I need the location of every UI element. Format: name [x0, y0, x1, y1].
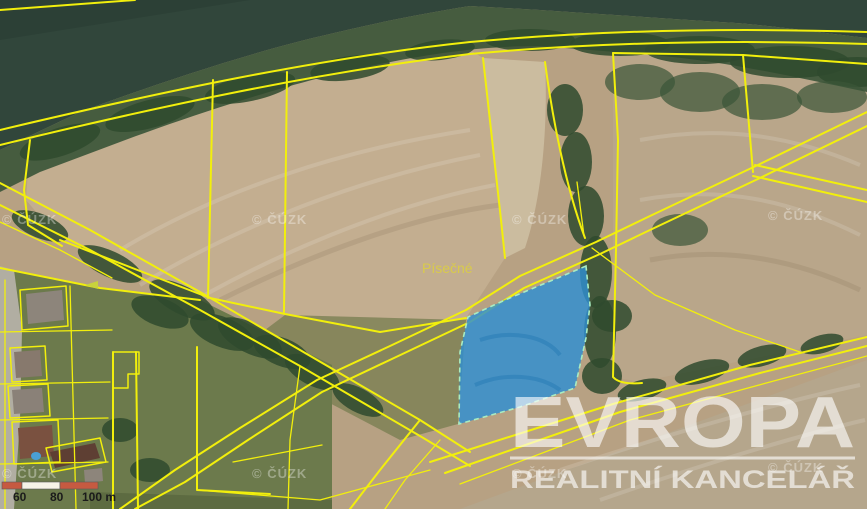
cuzk-watermark: © ČÚZK [768, 208, 823, 223]
logo-title: EVROPA [510, 383, 855, 463]
scale-label-100: 100 m [82, 490, 116, 504]
cuzk-watermark: © ČÚZK [2, 466, 57, 481]
place-label: Písečné [422, 260, 473, 276]
scale-label-60: 60 [13, 490, 27, 504]
cuzk-watermark: © ČÚZK [512, 212, 567, 227]
cadastral-map-viewport[interactable]: Písečné © ČÚZK © ČÚZK © ČÚZK © ČÚZK © ČÚ… [0, 0, 867, 509]
agency-logo-watermark: EVROPA REALITNÍ KANCELÁŘ [510, 383, 855, 494]
aerial-map-canvas[interactable]: Písečné © ČÚZK © ČÚZK © ČÚZK © ČÚZK © ČÚ… [0, 0, 867, 509]
logo-subtitle: REALITNÍ KANCELÁŘ [510, 464, 855, 494]
cuzk-watermark: © ČÚZK [2, 212, 57, 227]
cuzk-watermark: © ČÚZK [252, 212, 307, 227]
scale-label-80: 80 [50, 490, 64, 504]
cuzk-watermark: © ČÚZK [252, 466, 307, 481]
